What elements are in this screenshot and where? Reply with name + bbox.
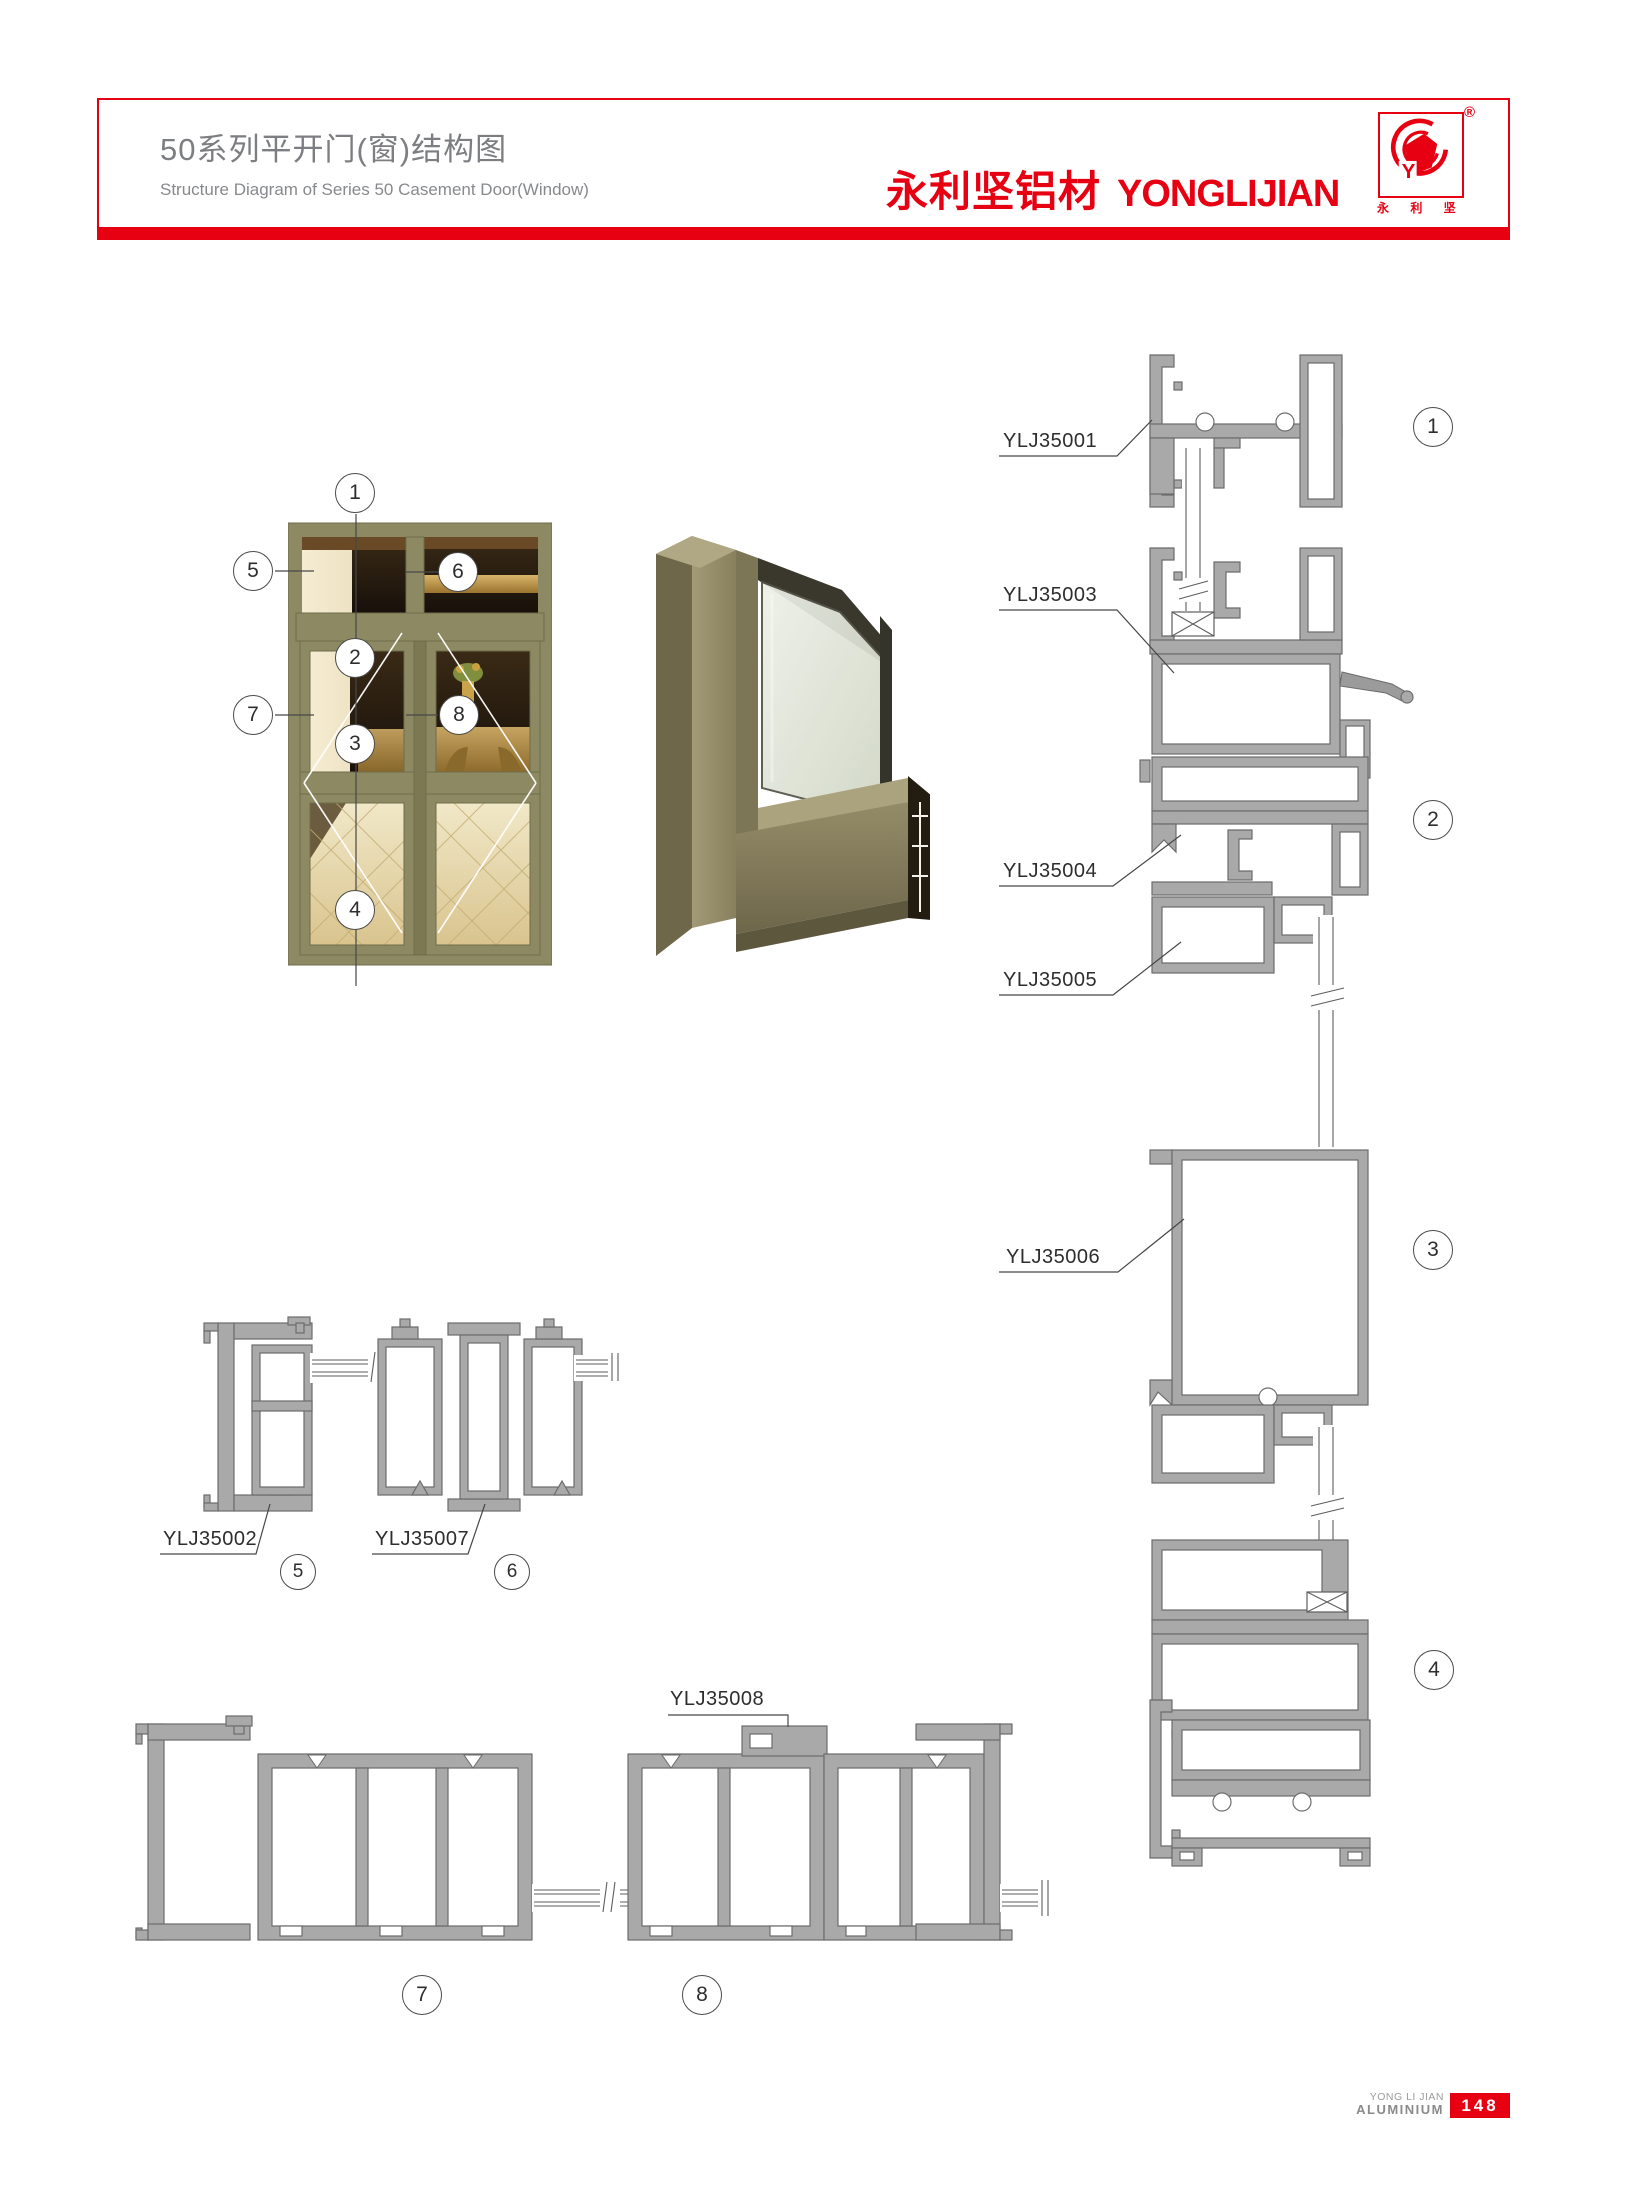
part-label-ylj35008: YLJ35008 [670, 1688, 764, 1711]
part-label-ylj35004: YLJ35004 [1003, 860, 1097, 883]
elevation-callout-2: 2 [335, 638, 375, 678]
section-callout-2: 2 [1413, 800, 1453, 840]
logo-y-glyph: Y [1402, 160, 1416, 183]
vertical-section-stack [1000, 340, 1470, 1890]
registered-trademark: ® [1464, 104, 1475, 121]
footer-brand: YONG LI JIAN ALUMINIUM [1318, 2092, 1444, 2117]
logo-caption: 永 利 坚 [1377, 199, 1465, 216]
brand-wordmark: 永利坚铝材 YONGLIJIAN [886, 158, 1339, 219]
section-callout-8: 8 [682, 1975, 722, 2015]
section-callout-3: 3 [1413, 1230, 1453, 1270]
section-callout-7: 7 [402, 1975, 442, 2015]
part-label-ylj35003: YLJ35003 [1003, 584, 1097, 607]
section-callout-6: 6 [494, 1554, 530, 1590]
elevation-callout-3: 3 [335, 724, 375, 764]
page-number-badge: 148 [1450, 2093, 1510, 2118]
elevation-callout-6: 6 [438, 552, 478, 592]
horizontal-sections-7-8 [130, 1680, 1080, 1950]
part-label-ylj35002: YLJ35002 [163, 1528, 257, 1551]
elevation-callout-8: 8 [439, 695, 479, 735]
window-elevation-drawing [288, 521, 552, 967]
horizontal-sections-5-6 [160, 1315, 630, 1525]
elevation-callout-7: 7 [233, 695, 273, 735]
brand-name-cn: 永利坚铝材 [886, 158, 1101, 219]
section-callout-1: 1 [1413, 407, 1453, 447]
part-label-ylj35001: YLJ35001 [1003, 430, 1097, 453]
brand-logo-icon: Y [1380, 114, 1457, 191]
part-label-ylj35007: YLJ35007 [375, 1528, 469, 1551]
page-title: 50系列平开门(窗)结构图 [160, 124, 507, 169]
page-subtitle: Structure Diagram of Series 50 Casement … [160, 180, 589, 200]
footer-brand-line2: ALUMINIUM [1318, 2103, 1444, 2117]
section-callout-5: 5 [280, 1554, 316, 1590]
part-label-ylj35005: YLJ35005 [1003, 969, 1097, 992]
elevation-callout-1: 1 [335, 473, 375, 513]
elevation-callout-5: 5 [233, 551, 273, 591]
header-red-bar [97, 227, 1510, 240]
elevation-callout-4: 4 [335, 890, 375, 930]
brand-name-en: YONGLIJIAN [1117, 173, 1339, 216]
section-callout-4: 4 [1414, 1650, 1454, 1690]
profile-3d-render [640, 520, 930, 975]
brand-logo-box: Y [1378, 112, 1464, 198]
part-label-ylj35006: YLJ35006 [1006, 1246, 1100, 1269]
catalog-page: 50系列平开门(窗)结构图 Structure Diagram of Serie… [0, 0, 1635, 2203]
